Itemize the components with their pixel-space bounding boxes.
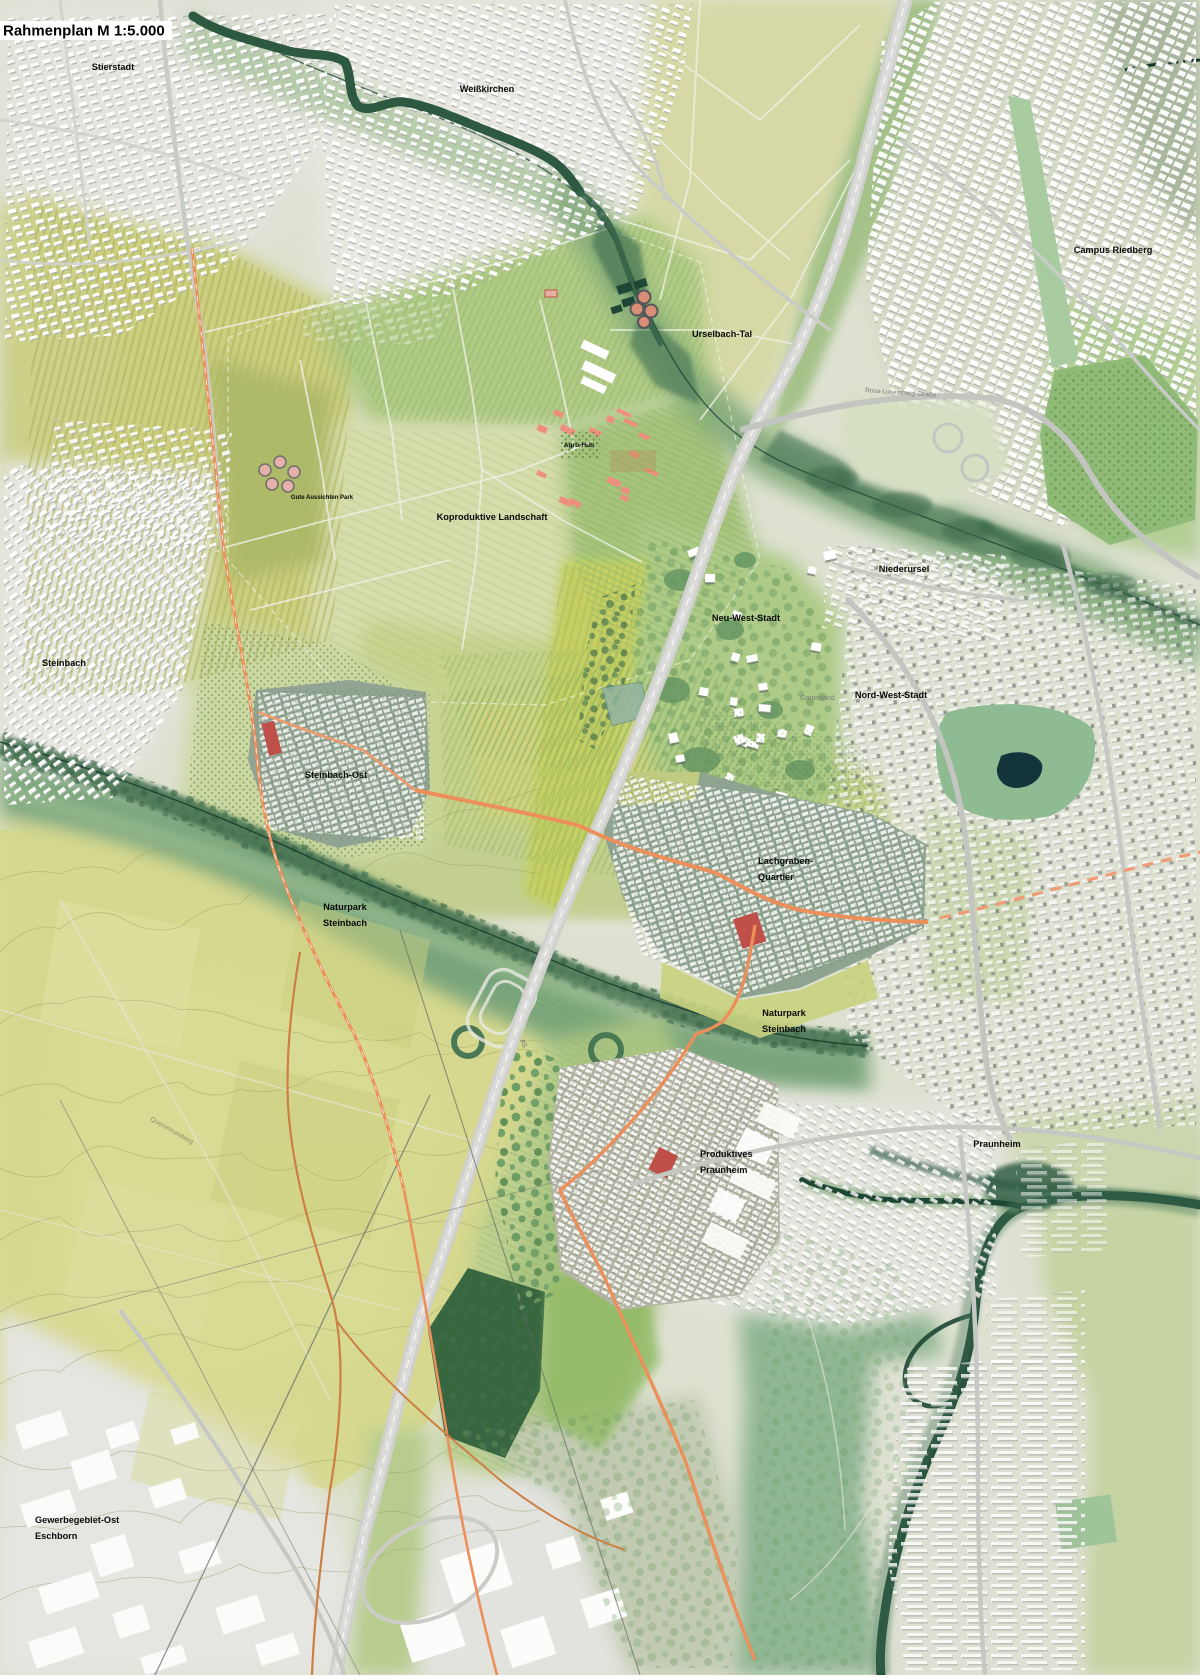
svg-text:Naturpark: Naturpark bbox=[762, 1008, 806, 1018]
svg-text:Gartenland: Gartenland bbox=[800, 695, 835, 702]
svg-text:Campus Riedberg: Campus Riedberg bbox=[1074, 245, 1153, 255]
svg-text:Praunheim: Praunheim bbox=[700, 1165, 747, 1175]
svg-text:Steinbach: Steinbach bbox=[42, 658, 86, 668]
svg-text:Produktives: Produktives bbox=[700, 1149, 753, 1159]
svg-text:Urselbach-Tal: Urselbach-Tal bbox=[692, 329, 752, 339]
svg-text:Agro-Hub: Agro-Hub bbox=[564, 442, 594, 449]
svg-text:Koproduktive Landschaft: Koproduktive Landschaft bbox=[437, 512, 548, 522]
svg-text:Gute Aussichten Park: Gute Aussichten Park bbox=[291, 495, 354, 501]
svg-text:Quartier: Quartier bbox=[758, 872, 794, 882]
svg-text:Steinbach: Steinbach bbox=[323, 918, 367, 928]
svg-text:Praunheim: Praunheim bbox=[973, 1139, 1020, 1149]
svg-text:Neu-West-Stadt: Neu-West-Stadt bbox=[712, 613, 780, 623]
svg-text:Nord-West-Stadt: Nord-West-Stadt bbox=[855, 690, 927, 700]
svg-text:Lachgraben-: Lachgraben- bbox=[758, 856, 813, 866]
svg-text:Steinbach-Ost: Steinbach-Ost bbox=[305, 770, 367, 780]
svg-text:Gewerbegebiet-Ost: Gewerbegebiet-Ost bbox=[35, 1515, 119, 1525]
svg-text:Steinbach: Steinbach bbox=[762, 1024, 806, 1034]
svg-text:Niederursel: Niederursel bbox=[879, 564, 930, 574]
svg-text:Naturpark: Naturpark bbox=[323, 902, 367, 912]
svg-text:Weißkirchen: Weißkirchen bbox=[460, 84, 515, 94]
svg-text:Rahmenplan M 1:5.000: Rahmenplan M 1:5.000 bbox=[3, 23, 165, 40]
svg-text:Stierstadt: Stierstadt bbox=[92, 62, 134, 72]
svg-text:Eschborn: Eschborn bbox=[35, 1531, 78, 1541]
